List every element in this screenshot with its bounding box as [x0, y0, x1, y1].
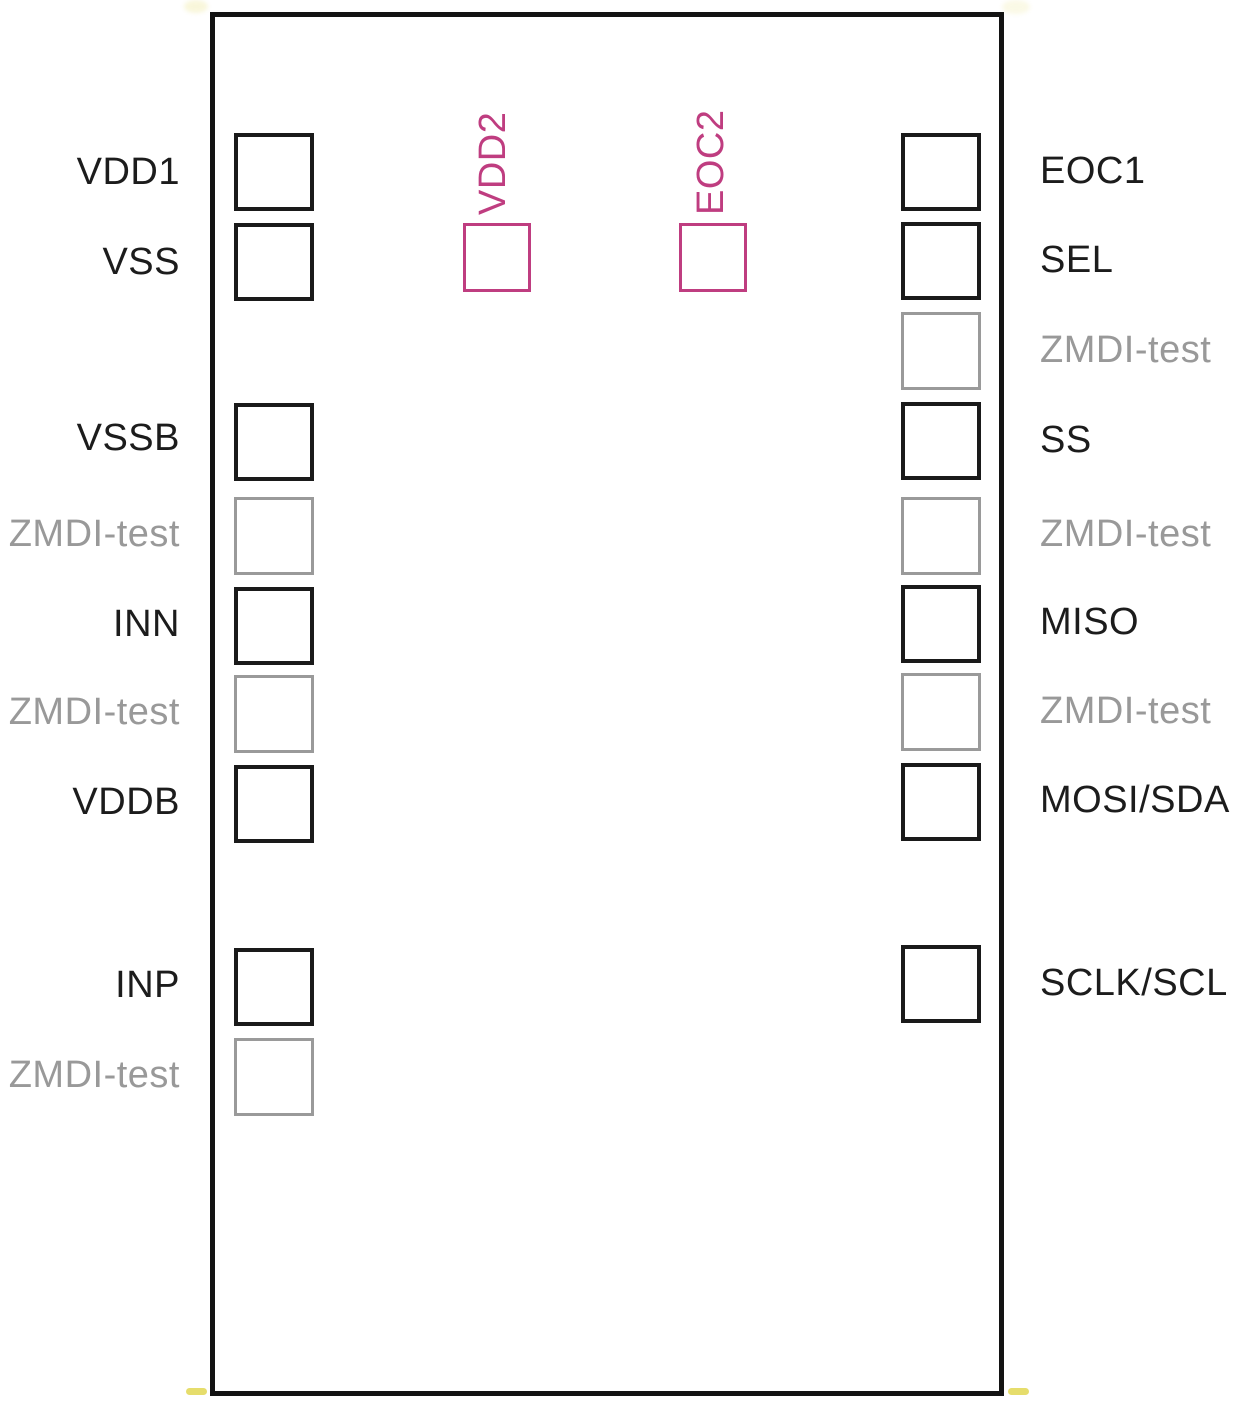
pad-eoc2	[679, 223, 747, 292]
corner-mark-bottom-right	[1008, 1388, 1029, 1395]
pin-label-vss: VSS	[102, 243, 180, 281]
pad-miso	[901, 585, 981, 663]
pinout-diagram: VDD1 VSS VSSB ZMDI-test INN ZMDI-test VD…	[0, 0, 1256, 1408]
pin-label-ss: SS	[1040, 421, 1092, 459]
pin-label-sclk-scl: SCLK/SCL	[1040, 964, 1228, 1002]
pin-label-vssb: VSSB	[77, 419, 180, 457]
pad-zmdi-test-left-2	[234, 675, 314, 753]
chip-outline	[210, 12, 1004, 1396]
pin-label-vdd1: VDD1	[77, 153, 180, 191]
pad-eoc1	[901, 133, 981, 211]
pin-label-inp: INP	[115, 966, 180, 1004]
pad-sclk-scl	[901, 945, 981, 1023]
pad-vdd2	[463, 223, 531, 292]
pin-label-eoc2: EOC2	[692, 93, 730, 215]
pin-label-zmdi-test-left-1: ZMDI-test	[9, 515, 180, 553]
pin-label-zmdi-test-left-2: ZMDI-test	[9, 693, 180, 731]
pin-label-mosi-sda: MOSI/SDA	[1040, 781, 1230, 819]
pad-vss	[234, 223, 314, 301]
pin-label-zmdi-test-left-3: ZMDI-test	[9, 1056, 180, 1094]
pad-zmdi-test-left-3	[234, 1038, 314, 1116]
pad-zmdi-test-left-1	[234, 497, 314, 575]
pad-mosi-sda	[901, 763, 981, 841]
pad-vssb	[234, 403, 314, 481]
pad-inn	[234, 587, 314, 665]
pad-vddb	[234, 765, 314, 843]
pad-zmdi-test-right-2	[901, 497, 981, 575]
pad-zmdi-test-right-1	[901, 312, 981, 390]
corner-mark-top-left	[184, 0, 208, 13]
pin-label-vdd2: VDD2	[474, 93, 512, 215]
pin-label-inn: INN	[113, 605, 180, 643]
pin-label-vddb: VDDB	[72, 783, 180, 821]
pin-label-eoc1: EOC1	[1040, 152, 1145, 190]
pad-zmdi-test-right-3	[901, 673, 981, 751]
pin-label-zmdi-test-right-3: ZMDI-test	[1040, 692, 1211, 730]
pin-label-zmdi-test-right-1: ZMDI-test	[1040, 331, 1211, 369]
pad-ss	[901, 402, 981, 480]
corner-mark-top-right	[1002, 0, 1030, 14]
pin-label-zmdi-test-right-2: ZMDI-test	[1040, 515, 1211, 553]
pad-vdd1	[234, 133, 314, 211]
corner-mark-bottom-left	[186, 1388, 207, 1395]
pin-label-miso: MISO	[1040, 603, 1139, 641]
pin-label-sel: SEL	[1040, 241, 1113, 279]
pad-inp	[234, 948, 314, 1026]
pad-sel	[901, 222, 981, 300]
